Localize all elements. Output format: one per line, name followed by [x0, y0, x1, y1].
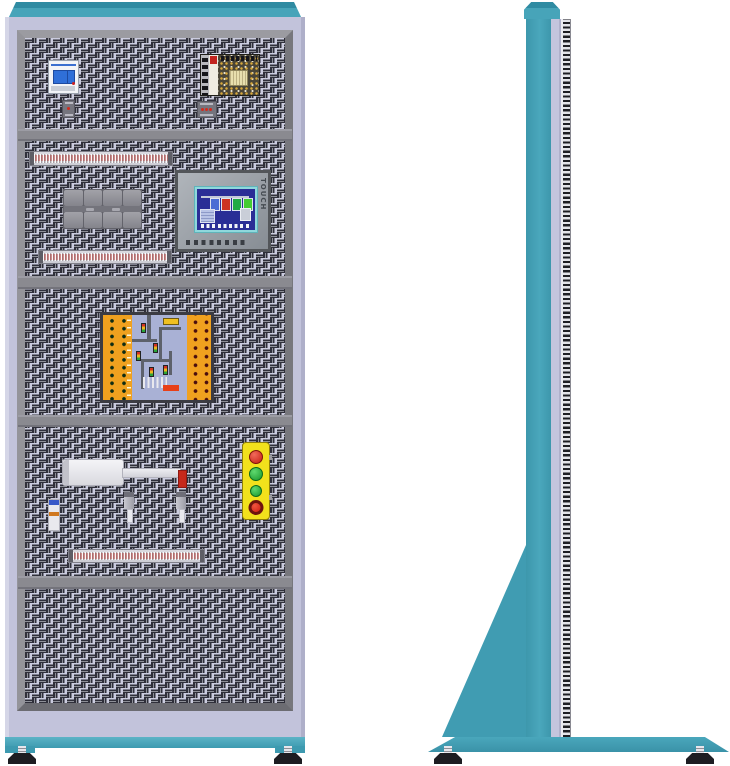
board-left-terminal-panel	[103, 315, 132, 400]
sensor-body	[176, 497, 186, 509]
traffic-light	[149, 367, 154, 377]
section-divider-1	[18, 129, 292, 141]
switching-power-supply	[200, 54, 260, 96]
foot-pad	[686, 753, 714, 764]
plc-trainer-board	[100, 312, 214, 403]
hmi-screen-frame	[194, 186, 258, 233]
traffic-light	[153, 343, 158, 353]
board-right-terminal-panel	[187, 315, 211, 400]
psu-transformer	[229, 70, 248, 86]
rail-end-cap	[168, 152, 172, 165]
side-gusset	[442, 545, 526, 737]
rail-end-cap	[200, 550, 204, 562]
terminal-labels	[127, 319, 131, 396]
sensor-body	[124, 497, 134, 509]
proximity-sensor	[124, 492, 134, 521]
sensor-stem	[127, 509, 133, 523]
relay-slot	[112, 208, 120, 211]
terminal-rail-1	[29, 151, 173, 166]
hmi-touch-panel: TOUCH	[175, 170, 271, 252]
relay-tab	[200, 103, 213, 105]
rail-end-cap	[167, 251, 171, 263]
push-button-station	[242, 442, 270, 520]
terminal-rail-3	[68, 549, 205, 563]
green-push-button-small	[250, 485, 262, 497]
pneumatic-cylinder-rod	[122, 468, 181, 478]
emergency-stop-button	[249, 500, 264, 515]
valve-band	[49, 512, 59, 516]
mini-relay	[62, 100, 75, 118]
hmi-hopper-graphic	[240, 208, 251, 221]
leveling-foot	[434, 746, 462, 766]
relay-led	[205, 108, 208, 111]
psu-top-terminals	[221, 56, 257, 61]
side-view	[420, 0, 730, 766]
relay-led	[209, 108, 212, 111]
side-perforated-edge	[563, 19, 571, 737]
green-push-button	[249, 467, 263, 481]
solenoid-valve	[48, 499, 60, 531]
relay-module	[123, 190, 142, 206]
board-red-tag	[163, 385, 179, 391]
traffic-light	[141, 323, 146, 333]
breaker-toggle	[53, 70, 68, 84]
cylinder-rod-tip	[178, 470, 187, 488]
relay-tab	[65, 114, 73, 116]
side-base-plate	[428, 737, 729, 752]
hmi-touch-label: TOUCH	[259, 178, 267, 210]
relay-module	[103, 190, 122, 206]
road-graphic	[132, 339, 157, 342]
relay-tab	[200, 114, 213, 116]
psu-terminal-block	[201, 55, 209, 95]
section-divider-3	[18, 415, 292, 427]
section-divider-4	[18, 576, 292, 589]
relay-module	[123, 212, 142, 228]
breaker-indicator-dot	[72, 82, 75, 85]
relay-module	[64, 212, 83, 228]
circuit-breaker	[48, 60, 79, 94]
illustration-canvas: TOUCH	[0, 0, 730, 766]
relay-led	[67, 107, 70, 110]
relay-module	[84, 190, 103, 206]
hmi-soft-buttons	[201, 224, 251, 228]
traffic-light	[136, 351, 141, 361]
mini-relay-wide	[197, 101, 217, 118]
leveling-foot	[686, 746, 714, 766]
breaker-base	[51, 86, 75, 91]
relay-row	[64, 212, 141, 228]
hmi-function-keys	[186, 240, 248, 245]
traffic-light	[163, 365, 168, 375]
leveling-foot	[274, 746, 302, 766]
relay-module	[103, 212, 122, 228]
relay-block-cluster	[63, 189, 142, 229]
relay-tab	[65, 102, 73, 104]
front-base-band	[5, 737, 305, 748]
side-top-cap	[524, 2, 560, 19]
road-graphic	[169, 351, 172, 375]
road-graphic	[159, 327, 162, 359]
psu-label	[209, 55, 218, 95]
side-rear-strip	[551, 19, 561, 737]
hmi-tank-red	[221, 198, 231, 211]
station-mount-tab	[269, 455, 272, 460]
relay-led	[201, 108, 204, 111]
section-divider-2	[18, 276, 292, 289]
proximity-sensor	[176, 492, 186, 521]
foot-pad	[274, 753, 302, 764]
foot-pad	[8, 753, 36, 764]
hmi-machine-graphic	[200, 209, 215, 223]
terminal-rail-2	[38, 250, 172, 264]
station-mount-tab	[269, 495, 272, 500]
front-view: TOUCH	[5, 0, 305, 766]
relay-slot	[86, 208, 94, 211]
pneumatic-cylinder-body	[62, 459, 124, 486]
relay-module	[84, 212, 103, 228]
relay-row	[64, 190, 141, 206]
side-column	[526, 19, 551, 737]
hmi-screen	[197, 189, 255, 230]
leveling-foot	[8, 746, 36, 766]
yellow-sign	[163, 318, 179, 325]
road-graphic	[159, 327, 181, 330]
road-graphic	[141, 359, 169, 362]
foot-pad	[434, 753, 462, 764]
sensor-stem	[179, 509, 185, 523]
relay-module	[64, 190, 83, 206]
breaker-blue-line	[51, 64, 76, 66]
red-push-button	[249, 450, 263, 464]
road-graphic	[147, 315, 151, 341]
valve-coil	[49, 500, 59, 505]
